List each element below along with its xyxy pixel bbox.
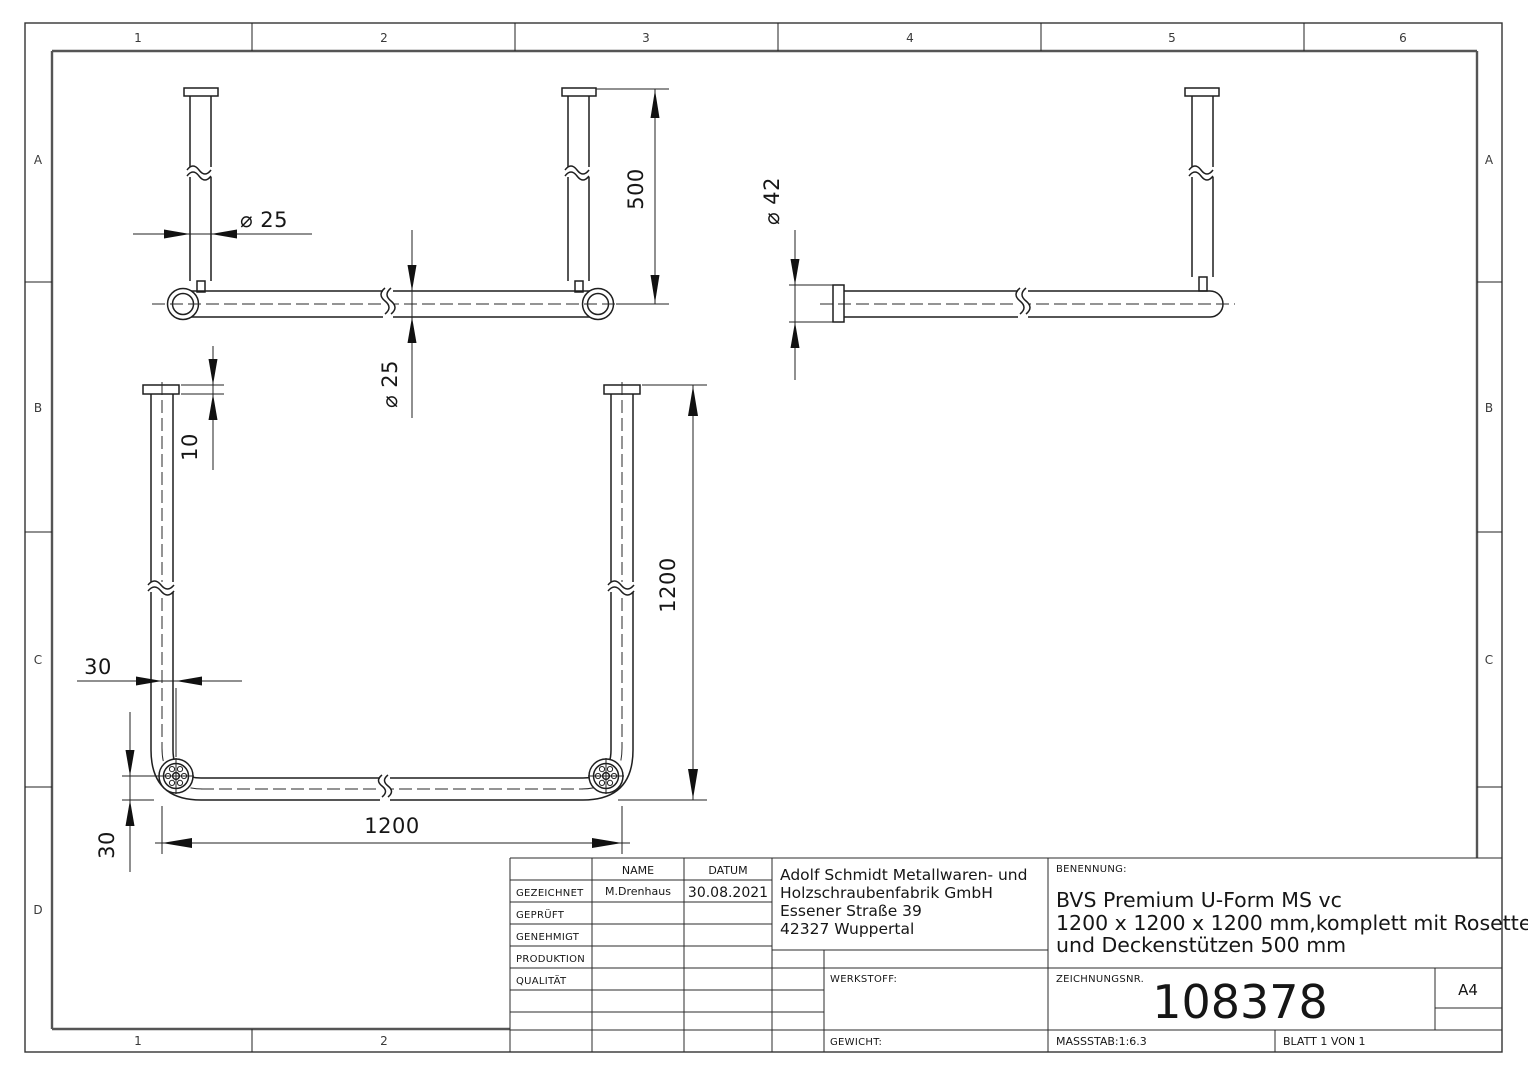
drawing-number: 108378	[1152, 975, 1328, 1029]
dim-text-width: 1200	[364, 814, 419, 838]
dimension-rosette-diameter: ⌀ 42	[760, 177, 834, 380]
break-symbol	[148, 581, 636, 595]
grid-row-label: C	[34, 653, 42, 667]
break-symbol	[1189, 166, 1215, 180]
grid-row-label: B	[1485, 401, 1493, 415]
dimension-support-length: 500	[596, 89, 669, 304]
grid-row-label: A	[1485, 153, 1494, 167]
designation-line: 1200 x 1200 x 1200 mm,komplett mit Roset…	[1056, 911, 1528, 935]
ceiling-support-flange-top-view	[158, 758, 194, 794]
dimension-depth: 1200	[618, 385, 707, 800]
scale-label: MASSSTAB:1:6.3	[1056, 1035, 1147, 1048]
dim-text-rosette-diameter: ⌀ 42	[760, 177, 784, 225]
approval-row-label: GENEHMIGT	[516, 932, 580, 943]
drawing-number-block: ZEICHNUNGSNR. 108378	[1056, 974, 1328, 1029]
weight-label: GEWICHT:	[830, 1037, 882, 1048]
grid-col-label: 6	[1399, 31, 1407, 45]
company-line: 42327 Wuppertal	[780, 920, 914, 938]
dim-text-plate-thickness: 10	[178, 433, 202, 461]
grid-col-label: 5	[1168, 31, 1176, 45]
grid-col-label: 2	[380, 1034, 388, 1048]
dim-text-offset-horizontal: 30	[84, 655, 112, 679]
drawing-sheet: 1 2 3 4 5 6 1 2 A B C D A B C	[0, 0, 1528, 1080]
grid-col-label: 1	[134, 31, 142, 45]
dimension-offset-vertical: 30	[95, 712, 158, 872]
company-block: Adolf Schmidt Metallwaren- und Holzschra…	[780, 866, 1027, 938]
approval-table: NAME DATUM GEZEICHNET M.Drenhaus 30.08.2…	[516, 864, 768, 987]
dim-text-support-diameter: ⌀ 25	[240, 208, 288, 232]
company-line: Essener Straße 39	[780, 902, 922, 920]
plan-view: 10 1200 30 30 1200	[77, 346, 707, 872]
grid-row-label: C	[1485, 653, 1493, 667]
approval-row-label: GEZEICHNET	[516, 888, 584, 899]
approval-row-label: GEPRÜFT	[516, 908, 565, 921]
designation-line: BVS Premium U-Form MS vc	[1056, 888, 1342, 912]
dim-text-offset-vertical: 30	[95, 831, 119, 859]
dimension-rail-diameter: ⌀ 25	[378, 230, 417, 418]
designation-line: und Deckenstützen 500 mm	[1056, 933, 1346, 957]
grid-col-label: 1	[134, 1034, 142, 1048]
dimension-support-diameter: ⌀ 25	[133, 208, 312, 239]
approval-row-label: PRODUKTION	[516, 954, 585, 965]
break-symbol	[381, 288, 395, 319]
approval-row-name: M.Drenhaus	[605, 885, 671, 898]
company-line: Holzschraubenfabrik GmbH	[780, 884, 993, 902]
break-symbol	[187, 166, 591, 180]
designation-label: BENENNUNG:	[1056, 864, 1127, 875]
grid-row-label: D	[33, 903, 42, 917]
paper-size: A4	[1458, 981, 1478, 999]
grid-col-label: 2	[380, 31, 388, 45]
drawing-number-label: ZEICHNUNGSNR.	[1056, 974, 1144, 985]
side-view: ⌀ 42	[760, 88, 1235, 380]
approval-row-label: QUALITÄT	[516, 974, 567, 987]
approval-row-date: 30.08.2021	[688, 885, 768, 901]
title-block: NAME DATUM GEZEICHNET M.Drenhaus 30.08.2…	[510, 858, 1528, 1052]
break-symbol	[379, 775, 392, 802]
name-column-header: NAME	[622, 864, 654, 877]
dim-text-rail-diameter: ⌀ 25	[378, 360, 402, 408]
dim-text-support-length: 500	[624, 168, 648, 210]
grid-row-label: A	[34, 153, 43, 167]
date-column-header: DATUM	[708, 864, 747, 877]
material-label: WERKSTOFF:	[830, 974, 897, 985]
grid-col-label: 3	[642, 31, 650, 45]
dimension-plate-thickness: 10	[178, 346, 224, 470]
dimension-width: 1200	[155, 806, 630, 854]
break-symbol	[1016, 288, 1030, 319]
dimension-offset-horizontal: 30	[77, 655, 242, 757]
dim-text-depth: 1200	[656, 557, 680, 612]
sheet-label: BLATT 1 VON 1	[1283, 1035, 1366, 1048]
company-line: Adolf Schmidt Metallwaren- und	[780, 866, 1027, 884]
designation-block: BENENNUNG: BVS Premium U-Form MS vc 1200…	[1056, 864, 1528, 957]
grid-col-label: 4	[906, 31, 914, 45]
grid-row-label: B	[34, 401, 42, 415]
